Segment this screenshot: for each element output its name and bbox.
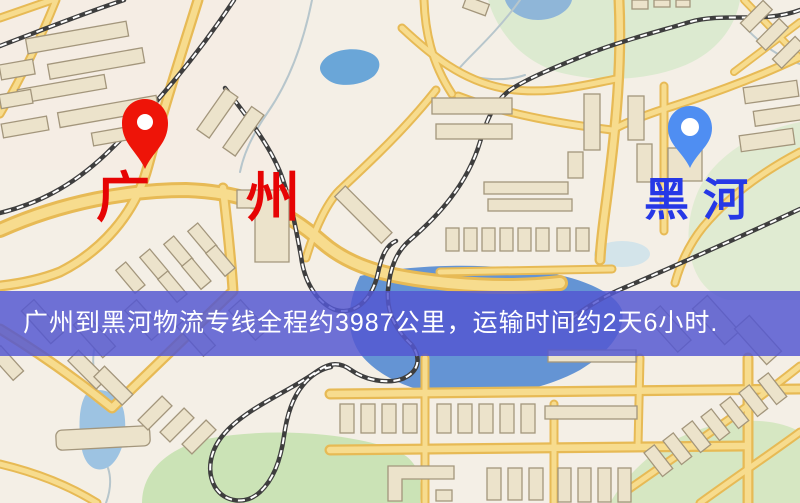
- map-canvas: [0, 0, 800, 503]
- map-image: 广州到黑河物流专线全程约3987公里，运输时间约2天6小时. 广州 黑河: [0, 0, 800, 503]
- route-info-banner: 广州到黑河物流专线全程约3987公里，运输时间约2天6小时.: [0, 291, 800, 356]
- origin-city-label: 广州: [96, 170, 396, 224]
- route-info-text: 广州到黑河物流专线全程约3987公里，运输时间约2天6小时.: [0, 291, 800, 356]
- destination-city-label: 黑河: [644, 177, 762, 222]
